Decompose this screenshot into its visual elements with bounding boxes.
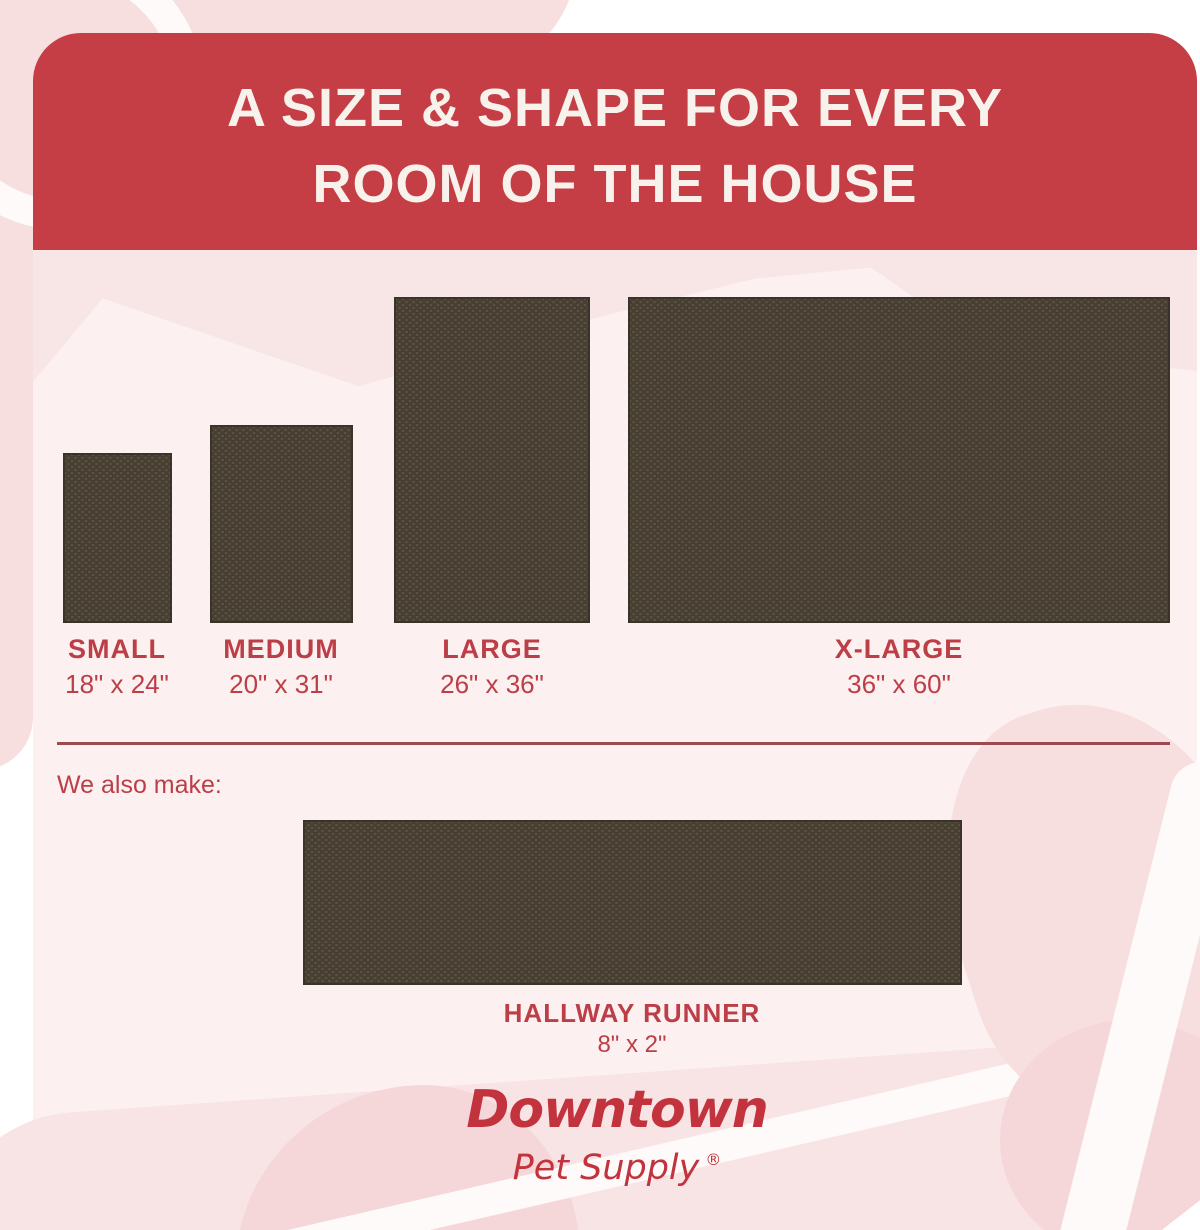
- size-swatch-small: [63, 453, 172, 623]
- size-label-small: SMALL 18" x 24": [37, 634, 197, 698]
- size-label-medium: MEDIUM 20" x 31": [201, 634, 361, 698]
- size-name: MEDIUM: [201, 634, 361, 664]
- size-dimensions: 36" x 60": [819, 670, 979, 698]
- divider-line: [57, 742, 1170, 745]
- size-name: LARGE: [412, 634, 572, 664]
- size-swatch-medium: [210, 425, 353, 623]
- headline: A SIZE & SHAPE FOR EVERY ROOM OF THE HOU…: [33, 70, 1197, 222]
- size-swatch-large: [394, 297, 590, 623]
- size-guide-infographic: A SIZE & SHAPE FOR EVERY ROOM OF THE HOU…: [0, 0, 1200, 1230]
- size-swatch-xlarge: [628, 297, 1170, 623]
- brand-subtitle: Pet Supply®: [367, 1140, 867, 1188]
- size-dimensions: 26" x 36": [412, 670, 572, 698]
- size-dimensions: 8" x 2": [432, 1032, 832, 1058]
- size-name: SMALL: [37, 634, 197, 664]
- also-make-label: We also make:: [57, 771, 222, 800]
- headline-line-2: ROOM OF THE HOUSE: [33, 146, 1197, 222]
- brand-logo: Downtown Pet Supply®: [367, 1082, 867, 1188]
- size-label-large: LARGE 26" x 36": [412, 634, 572, 698]
- size-swatch-hallway-runner: [303, 820, 962, 985]
- size-label-xlarge: X-LARGE 36" x 60": [819, 634, 979, 698]
- brand-subtitle-text: Pet Supply: [513, 1148, 700, 1188]
- size-label-hallway-runner: HALLWAY RUNNER 8" x 2": [432, 999, 832, 1058]
- brand-name: Downtown: [367, 1082, 867, 1138]
- size-name: HALLWAY RUNNER: [432, 999, 832, 1027]
- headline-line-1: A SIZE & SHAPE FOR EVERY: [33, 70, 1197, 146]
- size-dimensions: 18" x 24": [37, 670, 197, 698]
- size-dimensions: 20" x 31": [201, 670, 361, 698]
- registered-trademark-mark: ®: [705, 1150, 721, 1169]
- size-name: X-LARGE: [819, 634, 979, 664]
